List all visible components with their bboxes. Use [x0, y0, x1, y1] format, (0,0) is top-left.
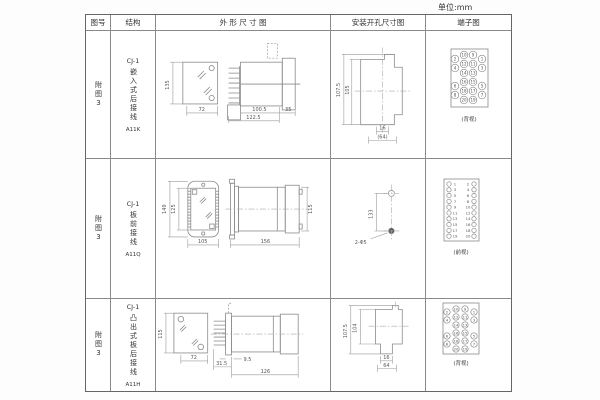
svg-text:13: 13	[463, 322, 468, 327]
dim-flange: 35	[285, 107, 291, 113]
svg-text:15: 15	[470, 80, 476, 85]
svg-text:17: 17	[470, 89, 476, 94]
row2-fig-no: 附图3	[86, 159, 111, 299]
svg-text:11: 11	[453, 210, 458, 215]
svg-text:9: 9	[472, 53, 475, 58]
svg-text:18: 18	[466, 228, 471, 233]
svg-text:7: 7	[454, 199, 457, 204]
svg-text:2: 2	[454, 57, 457, 62]
svg-text:17: 17	[453, 228, 458, 233]
dim-front-width: 72	[191, 355, 197, 361]
svg-text:5: 5	[473, 333, 476, 338]
structure-name-text: 嵌入式后接线	[130, 68, 137, 122]
svg-text:4: 4	[454, 66, 457, 71]
svg-text:11: 11	[463, 314, 468, 319]
front-dim-lines	[164, 313, 208, 364]
svg-text:4: 4	[467, 187, 470, 192]
row1-terminal-diagram: 2 10 9 1 4 12 11 3 14 13 6 16 15 5 8 18 …	[426, 31, 511, 157]
svg-text:7: 7	[481, 93, 484, 98]
row3-install-diagram: 107.5 104 16 64	[331, 299, 425, 389]
svg-text:1: 1	[454, 181, 457, 186]
terminal-circles: 2 10 9 1 4 12 11 3 14 13 6 16 15 5 8 18 …	[444, 306, 477, 352]
row1-outline-cell: 135 72 100.5 35 122.5	[156, 31, 331, 159]
row3-terminal-diagram: 2 10 9 1 4 12 11 3 14 13 6 16 15 5 8 18 …	[426, 299, 511, 389]
svg-text:16: 16	[454, 330, 459, 335]
svg-text:15: 15	[463, 330, 468, 335]
model-text: CJ-1	[127, 303, 140, 311]
svg-text:14: 14	[466, 216, 471, 221]
svg-text:14: 14	[454, 322, 459, 327]
row2-outline-diagram: 149 125 105 156 115	[156, 159, 330, 297]
dim-front-height: 115	[158, 329, 164, 338]
row2-outline-cell: 149 125 105 156 115	[156, 159, 331, 299]
svg-text:7: 7	[473, 341, 476, 346]
dim-inner-height: 104	[353, 323, 359, 332]
dim-inner-height: 125	[171, 204, 177, 213]
header-terminal: 端子图	[426, 15, 511, 31]
view-label: (背视)	[453, 359, 468, 367]
svg-text:17: 17	[463, 338, 468, 343]
model-text: CJ-1	[127, 57, 140, 65]
svg-text:6: 6	[446, 333, 449, 338]
svg-text:20: 20	[454, 346, 459, 351]
dim-hole-pitch: 133	[369, 209, 375, 218]
dim-front-width: 105	[198, 239, 207, 245]
row2-terminal-diagram: 12 34 56 78 910 1112 1314 1516 1718 1920…	[426, 159, 511, 297]
svg-text:12: 12	[461, 62, 467, 67]
svg-text:16: 16	[461, 80, 467, 85]
svg-text:6: 6	[454, 84, 457, 89]
dim-depth1: 100.5	[252, 107, 266, 113]
dim-w2: 64	[383, 363, 389, 369]
svg-text:14: 14	[461, 71, 467, 76]
row1-install-cell: 107.5 105 16 (64)	[331, 31, 426, 159]
svg-text:20: 20	[466, 234, 471, 239]
fig-no-text: 附图3	[95, 331, 102, 359]
row1-terminal-cell: 2 10 9 1 4 12 11 3 14 13 6 16 15 5 8 18 …	[426, 31, 511, 159]
row3-install-cell: 107.5 104 16 64	[331, 299, 426, 391]
svg-text:20: 20	[461, 98, 467, 103]
terminal-circles: 2 10 9 1 4 12 11 3 14 13 6 16 15 5 8 18 …	[451, 51, 486, 104]
front-view-drawing	[174, 313, 208, 353]
svg-text:5: 5	[454, 193, 457, 198]
front-view-drawing	[183, 62, 218, 104]
svg-text:8: 8	[454, 93, 457, 98]
svg-text:10: 10	[466, 205, 471, 210]
row1-structure: CJ-1 嵌入式后接线 A11K	[111, 31, 156, 159]
svg-text:2: 2	[446, 309, 449, 314]
dim-outer-height: 107.5	[343, 324, 349, 338]
dim-inner-height: 105	[345, 85, 351, 94]
model-code-text: A11H	[126, 382, 141, 388]
install-dim-lines	[342, 54, 396, 143]
row2-install-cell: 133 2-Φ5	[331, 159, 426, 299]
svg-text:13: 13	[470, 71, 476, 76]
svg-text:10: 10	[461, 53, 467, 58]
svg-text:4: 4	[446, 317, 449, 322]
dashed-tab	[267, 43, 277, 58]
svg-text:9: 9	[454, 205, 457, 210]
svg-text:1: 1	[481, 57, 484, 62]
terminal-circles: 12 34 56 78 910 1112 1314 1516 1718 1920	[447, 181, 476, 238]
install-dim-lines	[349, 305, 396, 371]
svg-text:13: 13	[453, 216, 458, 221]
dim-w2: (64)	[377, 135, 387, 141]
svg-text:18: 18	[461, 89, 467, 94]
unit-label: 单位:mm	[438, 2, 472, 13]
view-label: (前视)	[453, 248, 468, 256]
dim-front-height: 135	[165, 80, 171, 89]
row3-terminal-cell: 2 10 9 1 4 12 11 3 14 13 6 16 15 5 8 18 …	[426, 299, 511, 391]
dim-outer-height: 107.5	[336, 83, 342, 97]
header-outline: 外 形 尺 寸 图	[156, 15, 331, 31]
row3-fig-no: 附图3	[86, 299, 111, 391]
row2-structure: CJ-1 板前接线 A11Q	[111, 159, 156, 299]
svg-text:3: 3	[454, 187, 457, 192]
row3-outline-cell: 115 72 31.5 9.5 126	[156, 299, 331, 391]
svg-text:5: 5	[481, 84, 484, 89]
dim-d3: 126	[261, 369, 270, 375]
svg-text:8: 8	[467, 199, 470, 204]
header-structure: 结构	[111, 15, 156, 31]
svg-text:12: 12	[454, 314, 459, 319]
row1-outline-diagram: 135 72 100.5 35 122.5	[156, 31, 330, 157]
fig-no-text: 附图3	[95, 215, 102, 243]
svg-text:18: 18	[454, 338, 459, 343]
row1-install-diagram: 107.5 105 16 (64)	[331, 31, 425, 157]
svg-text:19: 19	[453, 234, 458, 239]
structure-name-text: 板前接线	[130, 211, 137, 247]
dim-side-height: 115	[308, 204, 314, 213]
cutout-shape	[376, 305, 403, 353]
svg-text:1: 1	[473, 309, 476, 314]
svg-text:12: 12	[466, 210, 471, 215]
svg-text:3: 3	[481, 66, 484, 71]
svg-text:8: 8	[446, 341, 449, 346]
svg-text:9: 9	[464, 306, 467, 311]
svg-text:2: 2	[467, 181, 470, 186]
view-label: (背视)	[461, 115, 476, 123]
dim-front-height: 149	[162, 204, 168, 213]
svg-text:11: 11	[470, 62, 476, 67]
dimension-table: 图号 结构 外 形 尺 寸 图 安装开孔尺寸图 端子图 附图3 CJ-1 嵌入式…	[85, 14, 512, 392]
front-view-drawing	[188, 181, 219, 237]
row3-structure: CJ-1 凸出式板后接线 A11H	[111, 299, 156, 391]
svg-text:6: 6	[467, 193, 470, 198]
model-code-text: A11Q	[125, 252, 140, 258]
row1-fig-no: 附图3	[86, 31, 111, 159]
dashed-tab	[229, 303, 233, 313]
header-fig-no: 图号	[86, 15, 111, 31]
dim-depth: 156	[261, 239, 270, 245]
row2-terminal-cell: 12 34 56 78 910 1112 1314 1516 1718 1920…	[426, 159, 511, 299]
dim-front-width: 72	[199, 107, 205, 113]
fig-no-text: 附图3	[95, 81, 102, 109]
model-text: CJ-1	[127, 200, 140, 208]
svg-text:15: 15	[453, 222, 458, 227]
cutout-shape	[361, 54, 403, 124]
svg-text:3: 3	[473, 317, 476, 322]
header-install: 安装开孔尺寸图	[331, 15, 426, 31]
dim-d1: 31.5	[216, 361, 227, 367]
dim-depth2: 122.5	[246, 115, 260, 121]
svg-text:16: 16	[466, 222, 471, 227]
svg-text:19: 19	[470, 98, 476, 103]
row2-install-diagram: 133 2-Φ5	[331, 159, 425, 297]
dim-w1: 16	[383, 355, 389, 361]
hole-spec-label: 2-Φ5	[355, 240, 367, 246]
dim-d2: 9.5	[244, 357, 252, 363]
dim-w1: 16	[379, 126, 385, 132]
svg-text:19: 19	[463, 346, 468, 351]
model-code-text: A11K	[126, 127, 140, 133]
structure-name-text: 凸出式板后接线	[130, 314, 137, 377]
row3-outline-diagram: 115 72 31.5 9.5 126	[156, 299, 330, 389]
svg-text:10: 10	[454, 306, 459, 311]
